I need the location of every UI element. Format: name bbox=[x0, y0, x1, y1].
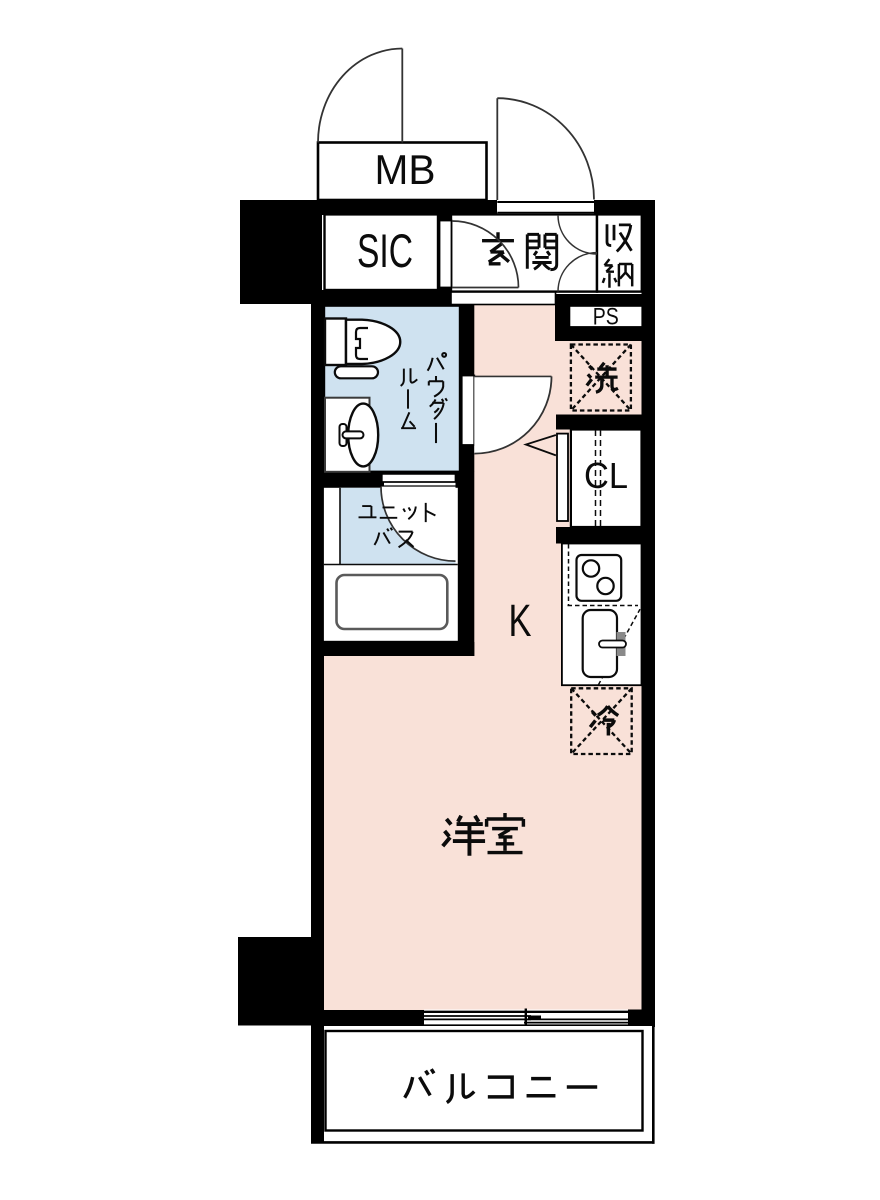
svg-text:PS: PS bbox=[593, 304, 619, 331]
svg-text:SIC: SIC bbox=[357, 224, 413, 277]
svg-text:K: K bbox=[509, 595, 532, 646]
svg-text:CL: CL bbox=[584, 455, 628, 496]
svg-text:MB: MB bbox=[375, 146, 436, 193]
